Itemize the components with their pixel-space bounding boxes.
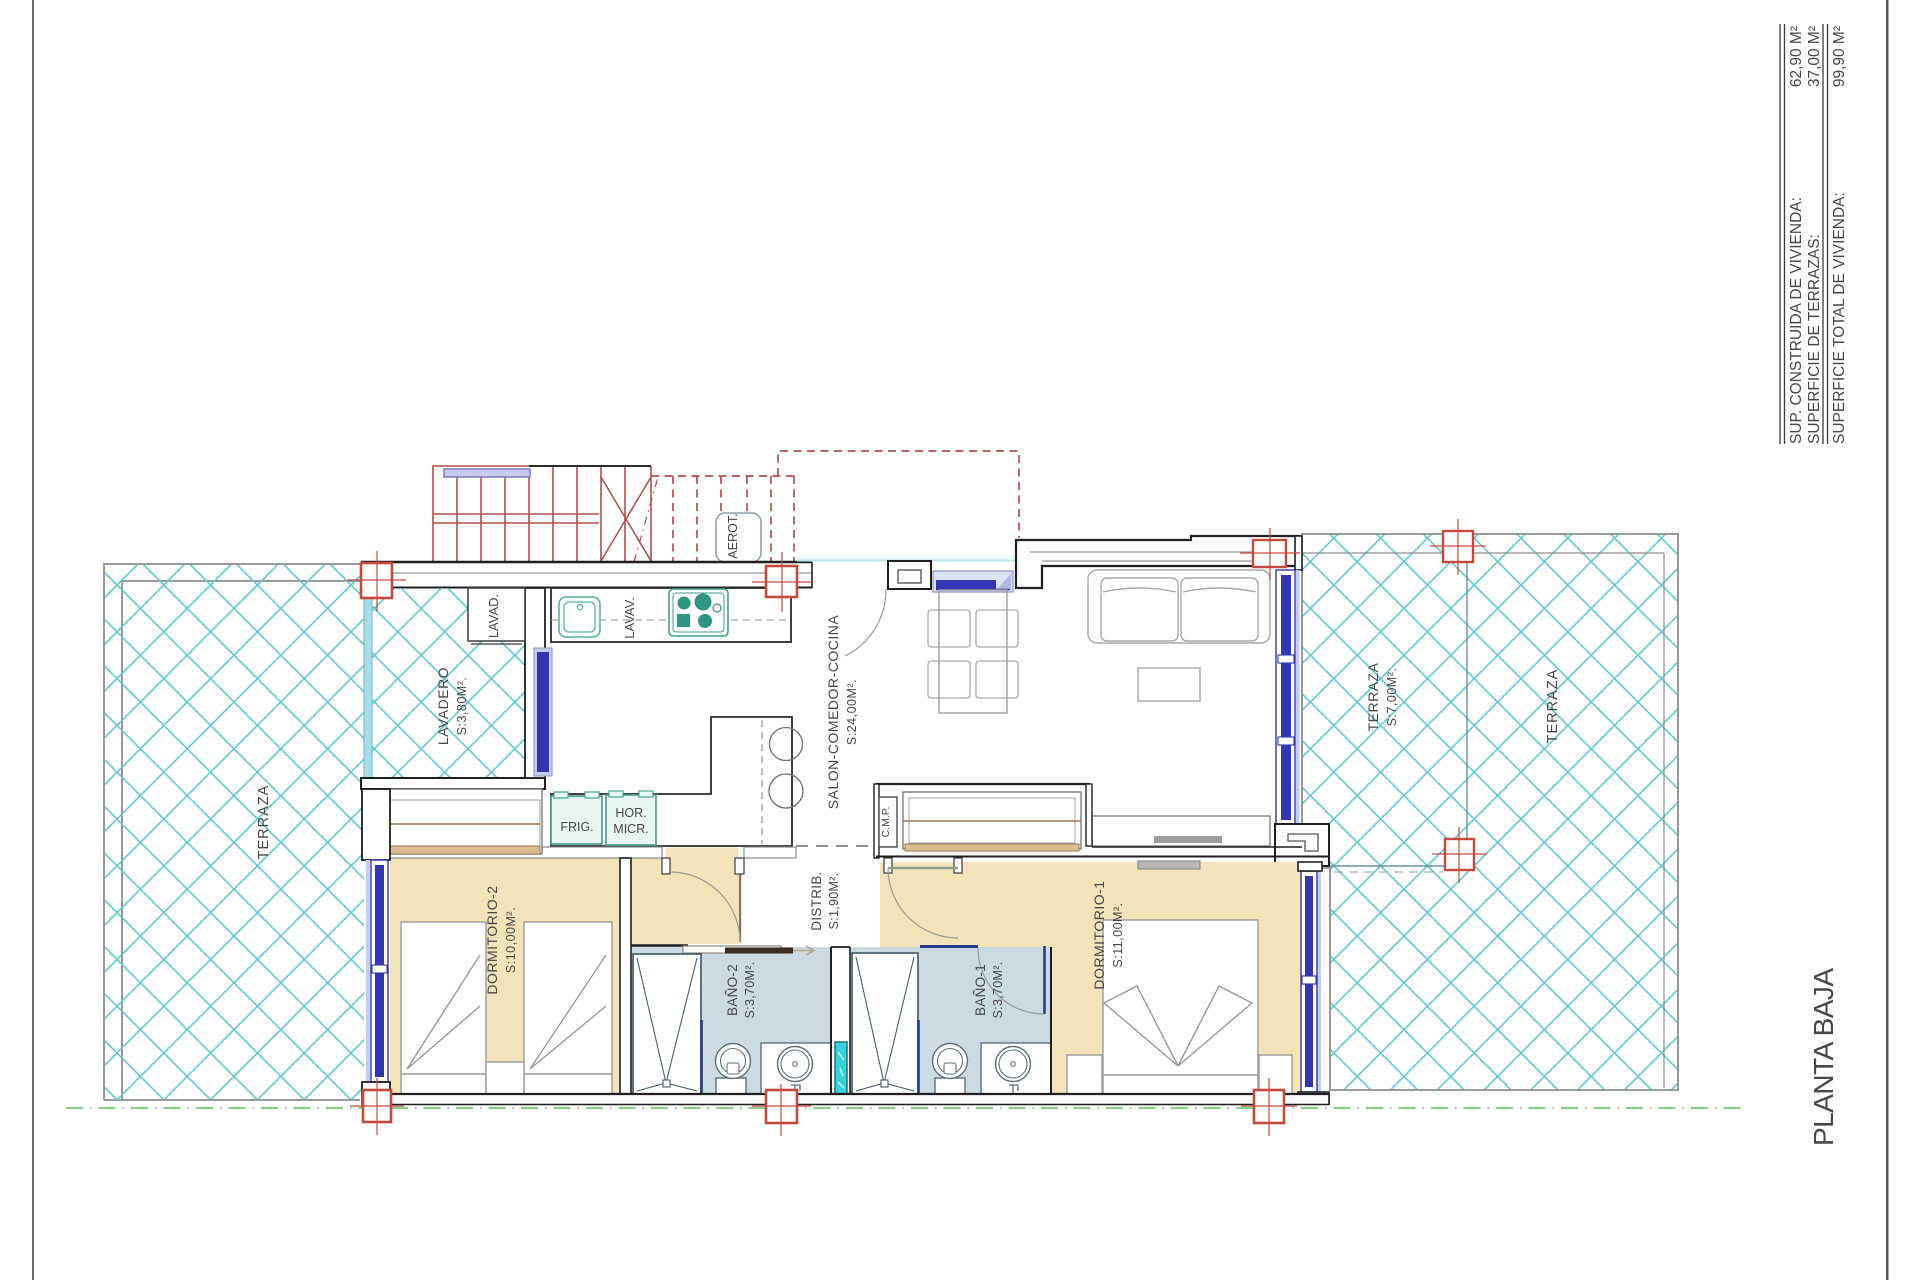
svg-text:SALON-COMEDOR-COCINA: SALON-COMEDOR-COCINA — [825, 615, 841, 810]
svg-text:TERRAZA: TERRAZA — [1545, 669, 1561, 744]
svg-text:99,90 M²: 99,90 M² — [1831, 26, 1848, 87]
svg-text:S:7,00M².: S:7,00M². — [1385, 668, 1399, 727]
svg-text:TERRAZA: TERRAZA — [256, 785, 272, 860]
svg-text:37,00 M²: 37,00 M² — [1806, 26, 1823, 87]
svg-text:HOR.: HOR. — [615, 806, 646, 820]
svg-text:BAÑO-2: BAÑO-2 — [725, 964, 740, 1016]
svg-text:S:3,70M².: S:3,70M². — [743, 962, 757, 1019]
svg-text:SUPERFICIE DE TERRAZAS:: SUPERFICIE DE TERRAZAS: — [1806, 234, 1823, 444]
svg-text:S:1,90M².: S:1,90M². — [827, 873, 841, 930]
svg-text:LAVAV.: LAVAV. — [622, 597, 637, 638]
svg-text:MICR.: MICR. — [613, 822, 648, 836]
svg-text:S:3,70M².: S:3,70M². — [991, 962, 1005, 1019]
svg-text:AEROT.: AEROT. — [726, 513, 740, 558]
svg-text:SUP. CONSTRUIDA DE VIVIENDA:: SUP. CONSTRUIDA DE VIVIENDA: — [1788, 197, 1805, 444]
svg-text:TERRAZA: TERRAZA — [1365, 662, 1381, 731]
svg-text:DORMITORIO-2: DORMITORIO-2 — [484, 885, 500, 994]
svg-text:S:10,00M².: S:10,00M². — [504, 907, 518, 973]
svg-text:S:3,80M².: S:3,80M². — [455, 677, 469, 736]
svg-text:BAÑO-1: BAÑO-1 — [973, 964, 988, 1016]
svg-text:S:24,00M².: S:24,00M². — [845, 679, 859, 745]
svg-text:62,90 M²: 62,90 M² — [1788, 26, 1805, 87]
svg-text:LAVADERO: LAVADERO — [435, 667, 451, 745]
svg-text:DISTRIB.: DISTRIB. — [809, 871, 824, 930]
svg-text:LAVAD.: LAVAD. — [486, 594, 501, 638]
svg-text:SUPERFICIE TOTAL DE VIVIENDA:: SUPERFICIE TOTAL DE VIVIENDA: — [1831, 192, 1848, 444]
svg-text:C.M.P.: C.M.P. — [880, 807, 892, 838]
svg-text:S:11,00M².: S:11,00M². — [1111, 902, 1125, 967]
svg-text:PLANTA BAJA: PLANTA BAJA — [1808, 968, 1839, 1146]
svg-text:DORMITORIO-1: DORMITORIO-1 — [1091, 880, 1107, 989]
svg-text:FRIG.: FRIG. — [560, 820, 593, 834]
